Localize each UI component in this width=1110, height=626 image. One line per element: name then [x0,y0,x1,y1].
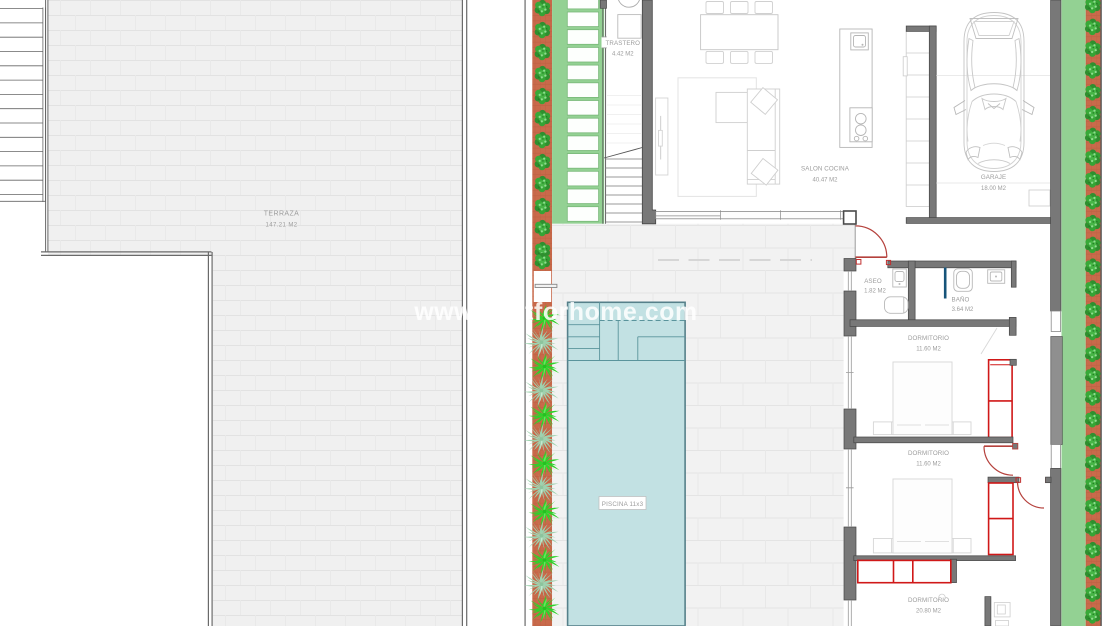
svg-text:www.bestforhome.com: www.bestforhome.com [413,299,697,326]
svg-text:18.00 M2: 18.00 M2 [981,186,1007,192]
svg-text:SALON COCINA: SALON COCINA [801,166,850,173]
svg-text:3.64 M2: 3.64 M2 [952,307,974,313]
svg-text:BAÑO: BAÑO [952,297,970,304]
svg-text:ASEO: ASEO [864,278,882,285]
svg-text:11.60 M2: 11.60 M2 [916,347,941,353]
svg-text:20.80 M2: 20.80 M2 [916,609,942,615]
svg-text:4.42 M2: 4.42 M2 [612,52,634,58]
svg-text:40.47 M2: 40.47 M2 [812,178,838,184]
svg-text:TERRAZA: TERRAZA [264,211,299,218]
svg-text:DORMITORIO: DORMITORIO [908,335,949,342]
svg-text:DORMITORIO: DORMITORIO [908,450,949,457]
svg-text:1.82 M2: 1.82 M2 [864,289,886,295]
svg-text:TRASTERO: TRASTERO [606,40,641,47]
svg-text:11.60 M2: 11.60 M2 [916,462,941,468]
svg-text:PISCINA 11x3: PISCINA 11x3 [602,501,644,508]
svg-text:147.21 M2: 147.21 M2 [266,223,298,229]
svg-text:GARAJE: GARAJE [981,174,1006,181]
